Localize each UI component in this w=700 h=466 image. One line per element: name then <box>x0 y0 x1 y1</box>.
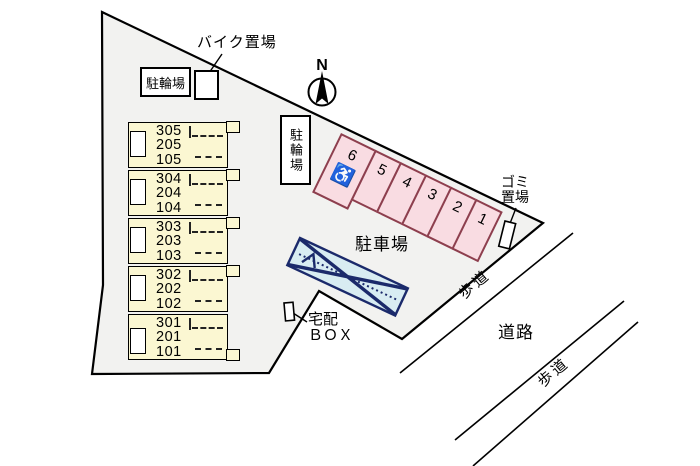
north-label: N <box>308 58 336 75</box>
building-group-3: 303 203 103 <box>128 218 228 264</box>
garbage-area-label: ゴミ 置場 <box>501 175 529 204</box>
north-arrow-icon <box>309 71 336 106</box>
unit-number: 303 <box>156 220 182 234</box>
stair-notch <box>130 131 146 157</box>
delivery-box <box>284 302 295 321</box>
bike-storage-label: バイク置場 <box>197 35 277 51</box>
unit-number: 301 <box>156 316 182 330</box>
parking-lot-label: 駐車場 <box>355 236 409 254</box>
unit-number: 201 <box>156 330 182 344</box>
building-step <box>226 169 240 181</box>
bike-storage-area <box>194 70 219 100</box>
unit-number: 304 <box>156 172 182 186</box>
unit-number: 302 <box>156 268 182 282</box>
bicycle-parking-label-top: 駐輪場 <box>146 73 185 92</box>
unit-number: 101 <box>156 345 182 359</box>
unit-number: 102 <box>156 297 182 311</box>
unit-number: 203 <box>156 234 182 248</box>
stair-notch <box>130 328 146 354</box>
site-plan: N バイク置場 駐輪場 駐輪場 305 205 105 304 204 104 <box>0 0 700 466</box>
road-label: 道路 <box>498 324 534 342</box>
stair-notch <box>130 275 146 301</box>
building-step <box>226 265 240 277</box>
building-group-1: 305 205 105 <box>128 122 228 168</box>
unit-numbers: 305 205 105 <box>156 124 182 167</box>
stair-notch <box>130 179 146 205</box>
bicycle-parking-box-top: 駐輪場 <box>140 67 191 97</box>
building-step <box>226 217 240 229</box>
unit-number: 204 <box>156 186 182 200</box>
building-group-5: 301 201 101 <box>128 314 228 360</box>
road-line <box>455 301 624 440</box>
unit-number: 205 <box>156 138 182 152</box>
sidewalk-line-lower <box>473 322 638 466</box>
building-step <box>226 349 240 361</box>
building-group-4: 302 202 102 <box>128 266 228 312</box>
unit-number: 305 <box>156 124 182 138</box>
unit-numbers: 301 201 101 <box>156 316 182 359</box>
site-plan-drawing <box>0 0 700 466</box>
bicycle-parking-label-mid: 駐輪場 <box>286 128 305 173</box>
unit-numbers: 304 204 104 <box>156 172 182 215</box>
unit-number: 105 <box>156 153 182 167</box>
stair-notch <box>130 227 146 253</box>
bicycle-parking-box-mid: 駐輪場 <box>280 115 311 185</box>
unit-numbers: 302 202 102 <box>156 268 182 311</box>
unit-number: 202 <box>156 282 182 296</box>
unit-number: 104 <box>156 201 182 215</box>
parking-space-number: 1 <box>467 206 498 233</box>
building-step <box>226 121 240 133</box>
delivery-box-label: 宅配 ＢＯＸ <box>308 312 353 344</box>
building-group-2: 304 204 104 <box>128 170 228 216</box>
unit-numbers: 303 203 103 <box>156 220 182 263</box>
unit-number: 103 <box>156 249 182 263</box>
